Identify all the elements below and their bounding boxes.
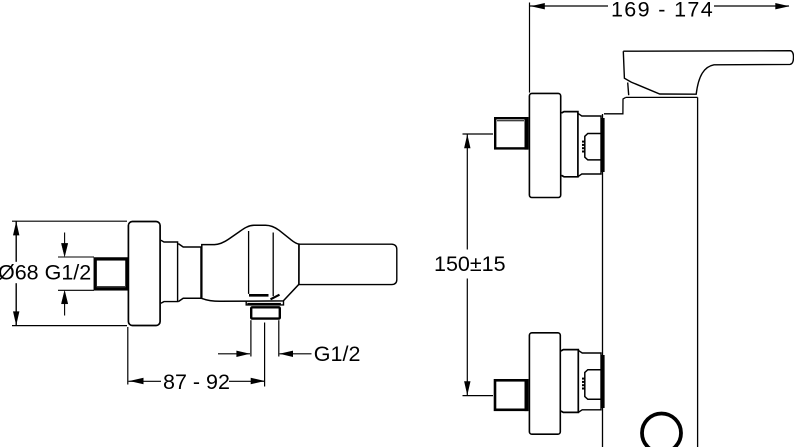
- svg-text:G1/2: G1/2: [314, 342, 361, 366]
- svg-text:150±15: 150±15: [434, 252, 506, 276]
- svg-text:87 - 92: 87 - 92: [163, 370, 230, 394]
- svg-text:169 - 174: 169 - 174: [611, 0, 714, 21]
- svg-text:Ø68 G1/2: Ø68 G1/2: [0, 261, 91, 285]
